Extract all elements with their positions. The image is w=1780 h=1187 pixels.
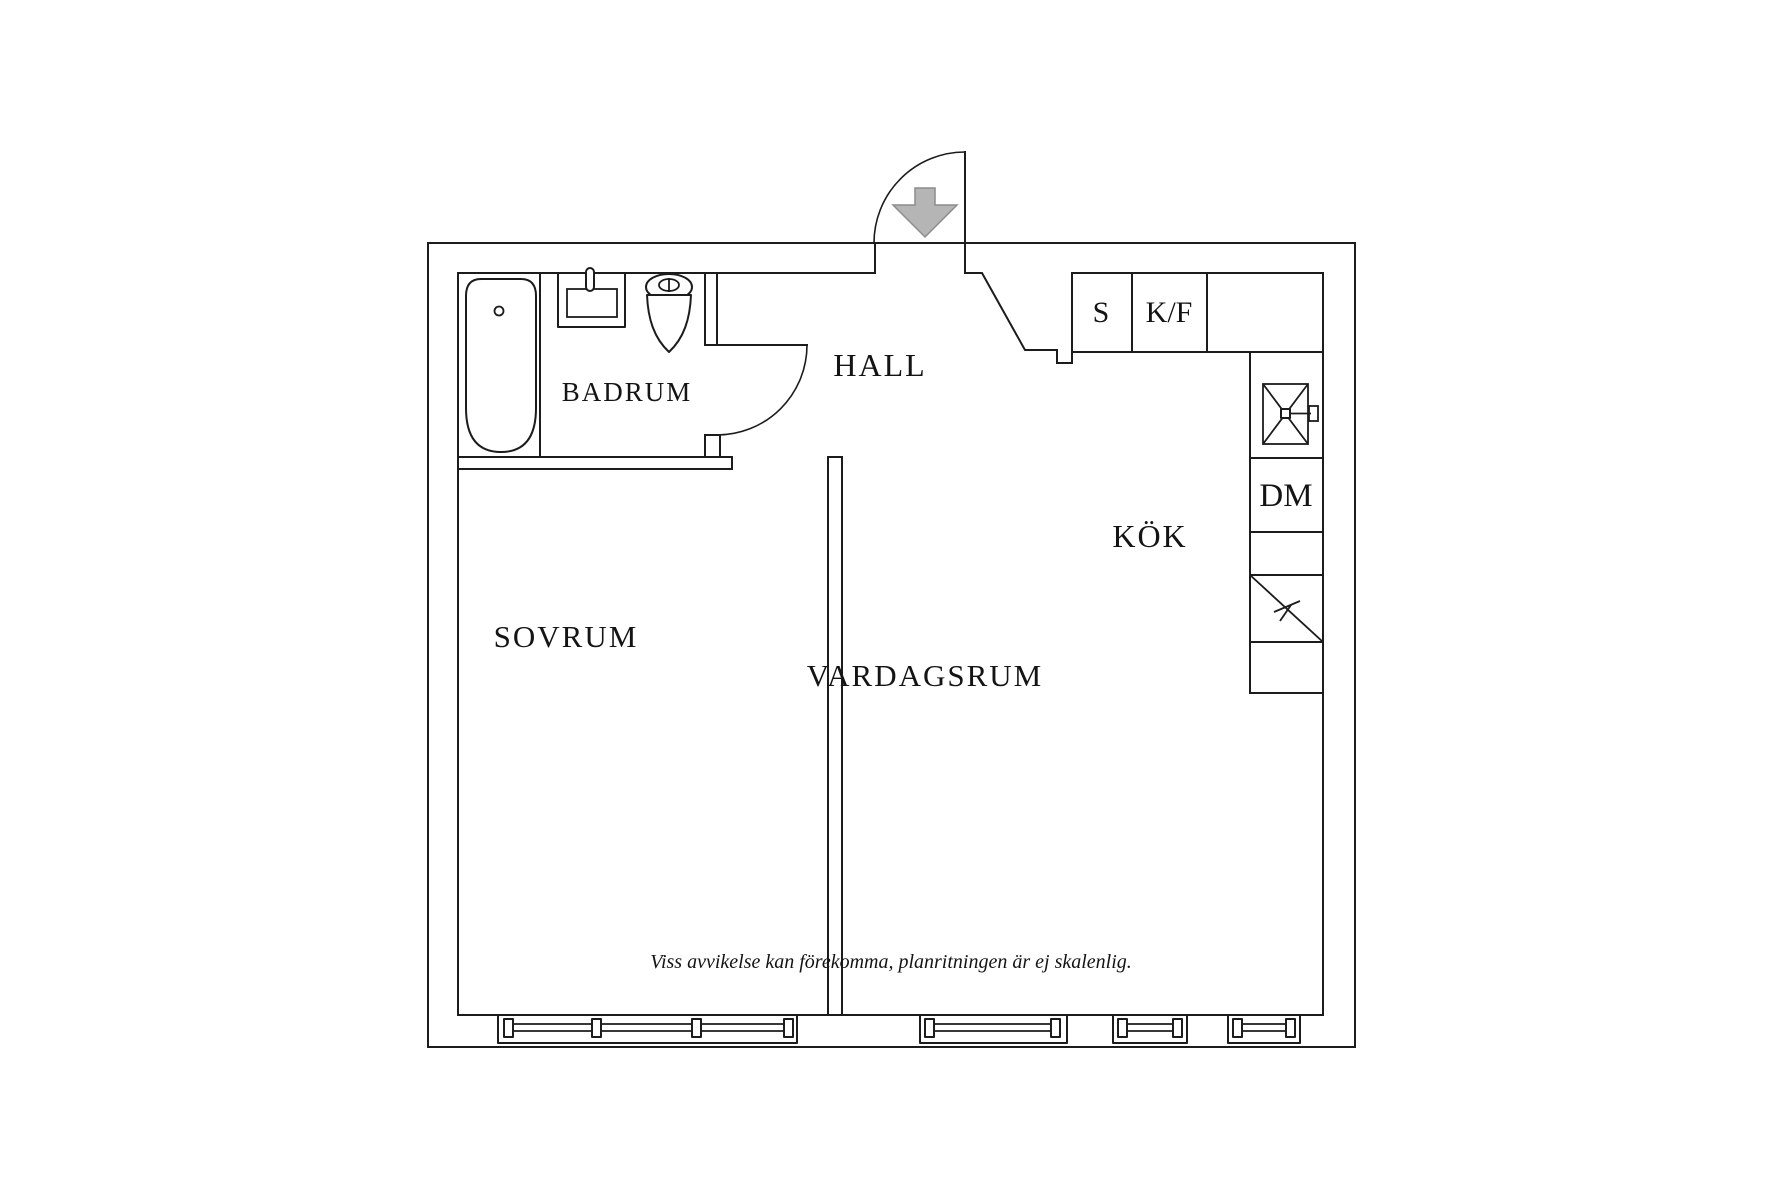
bathroom-fixtures [466, 268, 692, 457]
kitchen-sink-icon [1263, 384, 1318, 444]
kitchen-label: KÖK [1112, 518, 1187, 554]
bathroom-east-wall [705, 273, 717, 345]
cabinet-s-label: S [1093, 296, 1110, 329]
washbasin-tap-icon [586, 268, 594, 291]
dishwasher-label: DM [1259, 478, 1312, 514]
entrance-arrow-icon [893, 188, 957, 237]
entrance-door [874, 152, 965, 243]
kitchen-top-cabinet-row [1072, 273, 1323, 352]
hall-label: HALL [833, 347, 926, 383]
livingroom-window3-icon [1228, 1015, 1300, 1043]
disclaimer-text: Viss avvikelse kan förekomma, planritnin… [650, 951, 1132, 973]
livingroom-window2-icon [1113, 1015, 1187, 1043]
windows [498, 1015, 1300, 1043]
floorplan-drawing: BADRUM HALL SOVRUM VARDAGSRUM KÖK S K/F … [0, 0, 1780, 1187]
bathroom-door-arc [717, 345, 807, 435]
bathroom-door-stub [705, 435, 720, 457]
toilet-bowl-icon [647, 295, 691, 352]
bathroom-south-wall [458, 457, 732, 469]
fridge-freezer-label: K/F [1146, 296, 1193, 329]
floorplan-page: BADRUM HALL SOVRUM VARDAGSRUM KÖK S K/F … [0, 0, 1780, 1187]
bedroom-label: SOVRUM [494, 619, 639, 654]
stove-icon [1250, 575, 1323, 642]
living-room-label: VARDAGSRUM [807, 658, 1044, 693]
bedroom-divider-wall [828, 457, 842, 1015]
room-labels: BADRUM HALL SOVRUM VARDAGSRUM KÖK S K/F … [494, 296, 1313, 693]
bathtub-icon [466, 279, 536, 452]
bedroom-window-icon [498, 1015, 797, 1043]
bathroom-label: BADRUM [562, 377, 693, 407]
bathroom-door [717, 345, 807, 435]
hall-chamfer-wall [965, 273, 1072, 363]
livingroom-window-icon [920, 1015, 1067, 1043]
